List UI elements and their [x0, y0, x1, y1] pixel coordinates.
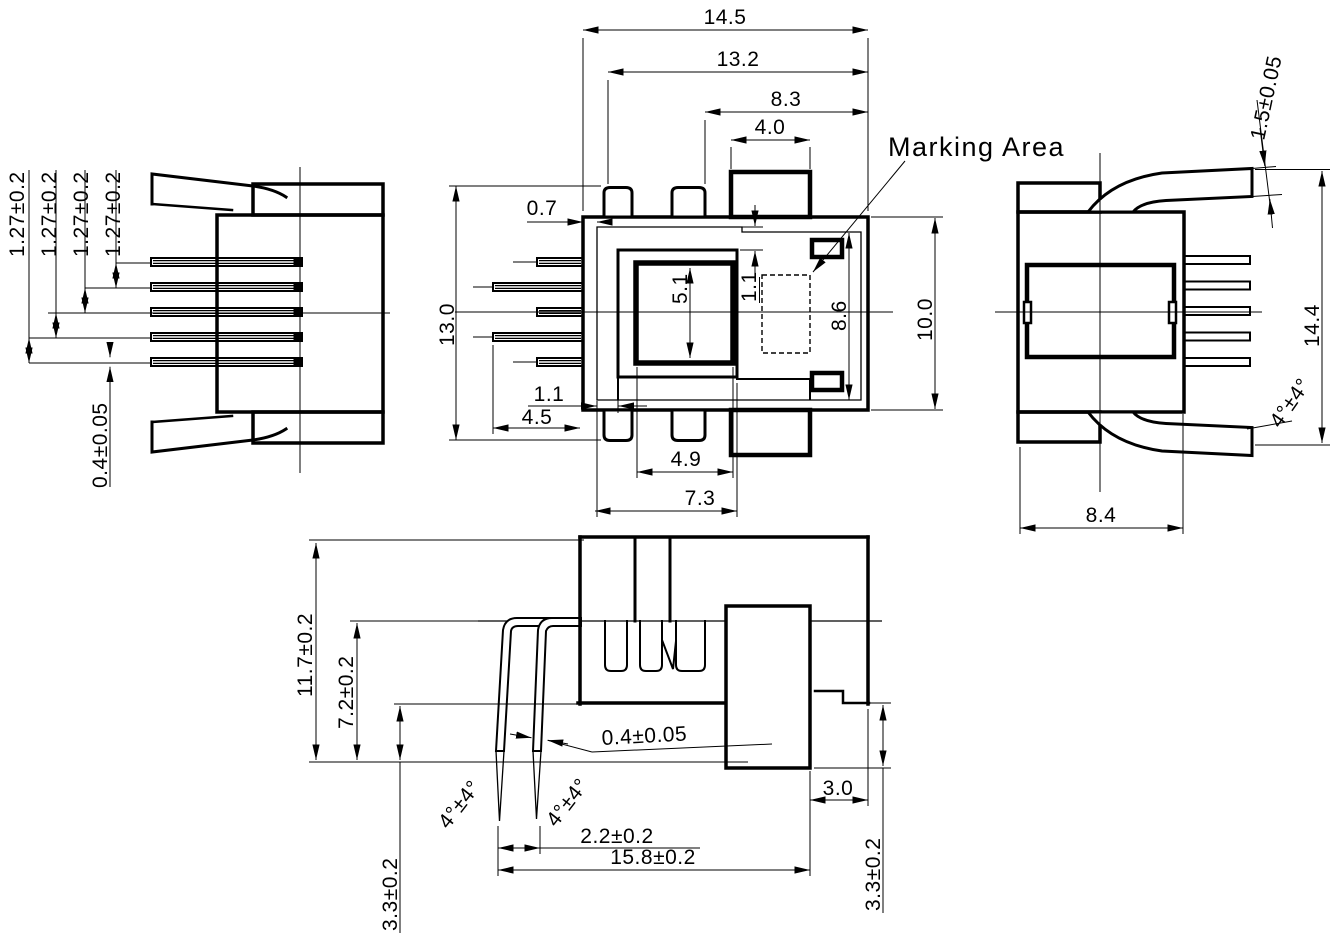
dim-bottom-length-total: 15.8±0.2	[610, 846, 696, 869]
dim-front-width-total: 14.5	[704, 6, 747, 29]
marking-area-label: Marking Area	[888, 132, 1065, 162]
left-view-pins	[151, 258, 303, 366]
bottom-boss	[731, 410, 810, 455]
dim-front-opening-height: 8.6	[828, 300, 851, 331]
dim-right-depth: 8.4	[1086, 504, 1117, 527]
dim-left-pitch-2: 1.27±0.2	[38, 171, 61, 257]
bottom-view: 11.7±0.2 7.2±0.2 3.3±0.2 0.4±0.05 4°±4° …	[294, 537, 891, 933]
front-view: 14.5 13.2 8.3 4.0 13.0 0.7 5.1 1.1	[436, 6, 1065, 517]
drawing-sheet: 1.27±0.2 1.27±0.2 1.27±0.2 1.27±0.2 0.4±…	[0, 0, 1334, 944]
dim-right-leg-thickness: 1.5±0.05	[1246, 54, 1286, 143]
dim-bottom-pin-angle-left: 4°±4°	[434, 776, 485, 833]
dim-front-shell-gap: 0.7	[527, 197, 558, 220]
right-view-pins	[1184, 256, 1250, 366]
marking-area-outline	[762, 275, 810, 353]
dim-bottom-tip-spacing: 2.2±0.2	[580, 825, 653, 848]
dim-right-height-total: 14.4	[1301, 304, 1324, 347]
dim-left-pin-thickness: 0.4±0.05	[89, 402, 112, 488]
bottom-mounting-leg	[1088, 412, 1252, 456]
dim-front-body-height: 10.0	[914, 298, 937, 341]
dim-left-pitch-4: 1.27±0.2	[102, 171, 125, 257]
top-boss	[731, 172, 810, 217]
dim-right-leg-angle: 4°±4°	[1265, 374, 1315, 432]
dim-bottom-height-above-board: 7.2±0.2	[335, 656, 358, 729]
top-mounting-leg	[1088, 169, 1252, 213]
dim-bottom-height-total: 11.7±0.2	[294, 613, 317, 697]
dim-left-pitch-1: 1.27±0.2	[6, 171, 29, 257]
dim-bottom-pin-thickness: 0.4±0.05	[601, 723, 688, 750]
dim-front-cavity-height: 5.1	[669, 273, 692, 304]
dim-front-height-total: 13.0	[436, 303, 459, 346]
dim-front-width-right: 8.3	[771, 88, 802, 111]
dim-bottom-boss-offset: 3.0	[823, 777, 854, 800]
dim-front-tab-width: 4.0	[755, 116, 786, 139]
left-side-view: 1.27±0.2 1.27±0.2 1.27±0.2 1.27±0.2 0.4±…	[6, 167, 390, 488]
right-view-geometry	[995, 153, 1262, 492]
dim-front-width-inner: 13.2	[717, 48, 760, 71]
dim-left-pitch-3: 1.27±0.2	[70, 171, 93, 257]
dim-bottom-standoff-right: 3.3±0.2	[862, 838, 885, 911]
dim-bottom-standoff-left: 3.3±0.2	[379, 858, 402, 931]
left-view-dimensions: 1.27±0.2 1.27±0.2 1.27±0.2 1.27±0.2 0.4±…	[6, 170, 151, 488]
dim-front-offset-bottom: 1.1	[534, 383, 565, 406]
bottom-view-geometry	[478, 537, 882, 821]
cad-drawing: 1.27±0.2 1.27±0.2 1.27±0.2 1.27±0.2 0.4±…	[0, 0, 1334, 944]
right-side-view: 1.5±0.05 14.4 4°±4° 8.4	[995, 54, 1330, 534]
latch-comb	[605, 621, 705, 671]
dim-front-offset-top: 1.1	[738, 271, 761, 302]
dim-front-housing-width: 7.3	[685, 487, 716, 510]
dim-bottom-pin-angle-right: 4°±4°	[542, 774, 593, 831]
dim-front-pin-length: 4.5	[522, 406, 553, 429]
dim-front-cavity-width: 4.9	[671, 448, 702, 471]
